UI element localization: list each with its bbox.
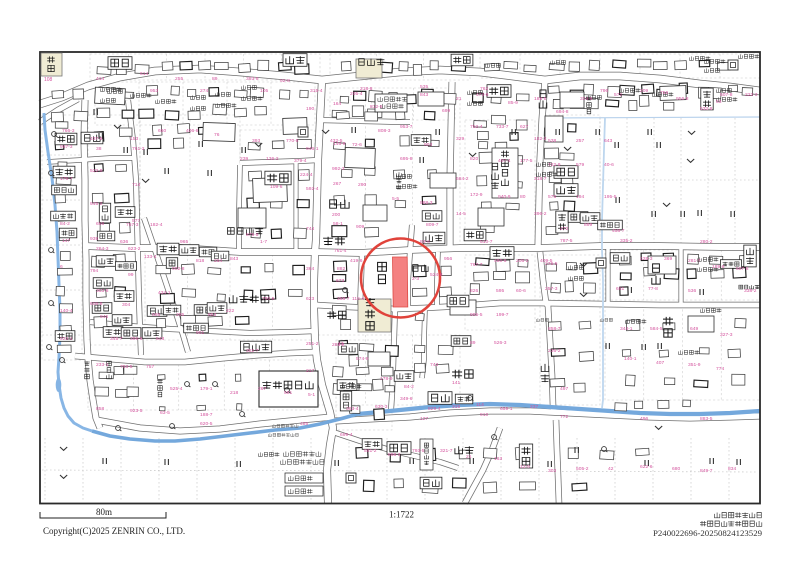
svg-text:577: 577: [132, 218, 140, 224]
svg-text:587-8: 587-8: [736, 266, 749, 272]
svg-text:92-8: 92-8: [280, 78, 290, 84]
svg-text:956: 956: [444, 256, 452, 262]
svg-text:189-8: 189-8: [712, 264, 725, 270]
svg-text:722-9: 722-9: [548, 162, 561, 168]
svg-text:23: 23: [338, 341, 344, 347]
svg-text:251-2: 251-2: [306, 341, 319, 347]
svg-text:267: 267: [333, 181, 341, 187]
svg-text:965: 965: [180, 239, 188, 245]
svg-text:233-1: 233-1: [96, 362, 109, 368]
svg-text:1:1722: 1:1722: [389, 510, 414, 520]
svg-text:744: 744: [306, 226, 314, 232]
svg-text:794: 794: [90, 268, 98, 274]
svg-text:206-2: 206-2: [516, 258, 529, 264]
svg-text:176-7: 176-7: [60, 176, 73, 182]
svg-text:902-8: 902-8: [172, 266, 185, 272]
svg-text:505-2: 505-2: [576, 466, 589, 472]
svg-text:6: 6: [60, 264, 63, 270]
svg-text:76: 76: [214, 132, 220, 138]
svg-text:290: 290: [358, 182, 366, 188]
svg-text:733-7: 733-7: [496, 124, 509, 130]
svg-text:178-9: 178-9: [380, 376, 393, 382]
svg-text:190: 190: [306, 106, 314, 112]
svg-text:21: 21: [456, 96, 462, 102]
svg-text:496: 496: [640, 416, 648, 422]
svg-text:72-6: 72-6: [352, 142, 362, 148]
svg-text:812-6: 812-6: [370, 104, 383, 110]
svg-text:883-5: 883-5: [700, 416, 713, 422]
svg-text:434-1: 434-1: [158, 290, 171, 296]
svg-text:694-8: 694-8: [556, 109, 569, 115]
svg-text:217: 217: [306, 368, 314, 374]
svg-text:510-7: 510-7: [480, 239, 493, 245]
svg-text:535: 535: [420, 84, 428, 90]
svg-text:487-4: 487-4: [498, 158, 511, 164]
svg-text:42: 42: [608, 466, 614, 472]
svg-text:224-4: 224-4: [300, 172, 313, 178]
svg-text:53: 53: [716, 99, 722, 105]
svg-text:595: 595: [496, 288, 504, 294]
svg-text:774: 774: [716, 366, 724, 372]
svg-text:21: 21: [466, 454, 472, 460]
svg-text:923-5: 923-5: [130, 408, 143, 414]
svg-text:649: 649: [690, 326, 698, 332]
svg-text:695: 695: [152, 312, 160, 318]
svg-text:63-5: 63-5: [160, 410, 170, 416]
svg-text:236-2: 236-2: [548, 348, 561, 354]
svg-text:622-6: 622-6: [640, 464, 653, 470]
svg-text:315-4: 315-4: [310, 88, 323, 94]
svg-text:620-5: 620-5: [200, 421, 213, 427]
svg-text:257: 257: [576, 138, 584, 144]
svg-text:761-2: 761-2: [132, 146, 145, 152]
svg-text:584-5: 584-5: [650, 326, 663, 332]
svg-text:345-7: 345-7: [110, 336, 123, 342]
svg-text:182-2: 182-2: [534, 136, 547, 142]
svg-text:536: 536: [688, 288, 696, 294]
svg-text:382-7: 382-7: [246, 348, 259, 354]
svg-text:239: 239: [240, 156, 248, 162]
svg-text:995-5: 995-5: [470, 312, 483, 318]
svg-text:946-1: 946-1: [306, 146, 319, 152]
svg-text:133-4: 133-4: [144, 254, 157, 260]
svg-text:882: 882: [337, 266, 345, 272]
svg-text:699: 699: [442, 108, 450, 114]
svg-text:783-5: 783-5: [120, 364, 133, 370]
svg-text:532-8: 532-8: [700, 106, 713, 112]
svg-text:787-5: 787-5: [560, 238, 573, 244]
svg-text:623: 623: [306, 296, 314, 302]
svg-text:255: 255: [175, 76, 183, 82]
svg-text:992-3: 992-3: [332, 166, 345, 172]
svg-text:12-9: 12-9: [520, 464, 530, 470]
svg-text:524-8: 524-8: [430, 272, 443, 278]
svg-text:179-1: 179-1: [200, 386, 213, 392]
svg-text:829-4: 829-4: [428, 406, 441, 412]
svg-text:522-9: 522-9: [90, 168, 103, 174]
svg-text:136-2: 136-2: [266, 156, 279, 162]
svg-text:699-4: 699-4: [340, 432, 353, 438]
svg-text:581: 581: [284, 390, 292, 396]
svg-text:643: 643: [604, 138, 612, 144]
svg-text:396-6: 396-6: [130, 336, 143, 342]
svg-text:843: 843: [420, 92, 428, 98]
svg-text:903: 903: [424, 142, 432, 148]
svg-text:368-7: 368-7: [337, 296, 350, 302]
svg-text:188-7: 188-7: [200, 412, 213, 418]
svg-text:757: 757: [146, 364, 154, 370]
svg-text:114: 114: [476, 402, 484, 408]
svg-text:164: 164: [333, 101, 341, 107]
svg-text:575: 575: [548, 194, 556, 200]
svg-text:899: 899: [584, 222, 592, 228]
svg-text:429-3: 429-3: [640, 256, 653, 262]
svg-text:264: 264: [214, 258, 222, 264]
svg-text:898-3: 898-3: [388, 452, 401, 458]
svg-text:497: 497: [560, 386, 568, 392]
svg-text:84-2: 84-2: [60, 221, 70, 227]
svg-text:14-5: 14-5: [456, 211, 466, 217]
svg-text:222-3: 222-3: [745, 92, 758, 98]
svg-text:274: 274: [200, 88, 208, 94]
svg-text:109-6: 109-6: [270, 184, 283, 190]
svg-text:89: 89: [470, 340, 476, 346]
svg-text:188-5: 188-5: [534, 96, 547, 102]
svg-text:407: 407: [656, 360, 664, 366]
svg-text:473-6: 473-6: [476, 92, 489, 98]
svg-text:673: 673: [336, 278, 344, 284]
svg-text:209: 209: [640, 88, 648, 94]
svg-text:327-3: 327-3: [720, 332, 733, 338]
svg-text:89: 89: [212, 76, 218, 82]
svg-text:752-4: 752-4: [470, 124, 483, 130]
svg-text:318-7: 318-7: [534, 176, 547, 182]
svg-text:344-1: 344-1: [620, 326, 633, 332]
svg-text:80m: 80m: [96, 507, 112, 517]
svg-text:818: 818: [196, 258, 204, 264]
svg-text:393: 393: [252, 138, 260, 144]
svg-text:280-2: 280-2: [700, 239, 713, 245]
svg-text:659-1: 659-1: [500, 406, 513, 412]
svg-text:808-3: 808-3: [378, 128, 391, 134]
svg-text:627: 627: [520, 124, 528, 130]
svg-text:60-6: 60-6: [516, 288, 526, 294]
svg-text:222: 222: [226, 308, 234, 314]
svg-text:85-9: 85-9: [508, 100, 518, 106]
svg-text:140-1: 140-1: [624, 356, 637, 362]
svg-text:335-2: 335-2: [620, 238, 633, 244]
svg-text:636: 636: [120, 239, 128, 245]
svg-text:572: 572: [614, 92, 622, 98]
svg-text:38: 38: [96, 146, 102, 152]
svg-text:264-3: 264-3: [96, 246, 109, 252]
svg-text:579: 579: [576, 162, 584, 168]
svg-text:656: 656: [96, 221, 104, 227]
svg-text:458-7: 458-7: [612, 228, 625, 234]
svg-text:660: 660: [158, 128, 166, 134]
svg-text:507-8: 507-8: [720, 92, 733, 98]
svg-text:281-7: 281-7: [688, 258, 701, 264]
svg-text:218-8: 218-8: [360, 86, 373, 92]
svg-text:363-8: 363-8: [96, 288, 109, 294]
svg-text:809-7: 809-7: [426, 222, 439, 228]
svg-text:472: 472: [560, 226, 568, 232]
svg-text:614: 614: [140, 71, 148, 77]
svg-text:922-1: 922-1: [60, 336, 73, 342]
svg-text:77-8: 77-8: [648, 286, 658, 292]
svg-text:141: 141: [452, 380, 460, 386]
svg-text:743: 743: [430, 362, 438, 368]
svg-text:127: 127: [420, 416, 428, 422]
svg-text:324-5: 324-5: [580, 96, 593, 102]
svg-text:40-6: 40-6: [604, 162, 614, 168]
svg-text:1-7: 1-7: [260, 239, 267, 245]
svg-text:485: 485: [300, 421, 308, 427]
svg-text:P240022696-20250824123529: P240022696-20250824123529: [653, 528, 763, 538]
svg-text:756: 756: [660, 90, 668, 96]
svg-text:940-9: 940-9: [498, 194, 511, 200]
svg-text:525-4: 525-4: [170, 386, 183, 392]
svg-text:5-1: 5-1: [308, 392, 315, 398]
svg-text:276-5: 276-5: [545, 261, 558, 267]
svg-text:630-3: 630-3: [375, 404, 388, 410]
svg-text:853: 853: [208, 312, 216, 318]
svg-text:58-1: 58-1: [333, 221, 343, 227]
svg-text:606-8: 606-8: [90, 301, 103, 307]
svg-text:182-4: 182-4: [150, 222, 163, 228]
svg-text:901: 901: [196, 330, 204, 336]
svg-text:945-2: 945-2: [90, 201, 103, 207]
svg-text:304: 304: [122, 302, 130, 308]
svg-text:396-2: 396-2: [534, 211, 547, 217]
svg-text:538: 538: [548, 138, 556, 144]
svg-text:349-6: 349-6: [400, 396, 413, 402]
svg-text:406-8: 406-8: [186, 128, 199, 134]
svg-text:146-9: 146-9: [333, 141, 346, 147]
svg-text:714: 714: [132, 182, 140, 188]
svg-text:363-4: 363-4: [346, 406, 359, 412]
svg-text:338-2: 338-2: [744, 288, 757, 294]
svg-text:953: 953: [150, 88, 158, 94]
svg-text:84-2: 84-2: [404, 384, 414, 390]
svg-text:194: 194: [576, 194, 584, 200]
svg-text:939: 939: [90, 236, 98, 242]
svg-text:153: 153: [130, 136, 138, 142]
svg-text:172-9: 172-9: [470, 192, 483, 198]
svg-text:5-5: 5-5: [392, 196, 399, 202]
svg-text:200: 200: [332, 212, 340, 218]
svg-text:967-3: 967-3: [60, 144, 73, 150]
svg-text:796: 796: [600, 88, 608, 94]
svg-text:80: 80: [520, 194, 526, 200]
svg-text:858: 858: [96, 406, 104, 412]
svg-text:770-8: 770-8: [286, 138, 299, 144]
svg-text:83-6: 83-6: [420, 239, 430, 245]
svg-text:820: 820: [470, 156, 478, 162]
svg-text:858-7: 858-7: [548, 326, 561, 332]
svg-text:199-7: 199-7: [496, 312, 509, 318]
svg-text:237: 237: [530, 404, 538, 410]
svg-text:480-5: 480-5: [494, 258, 507, 264]
svg-text:761-4: 761-4: [334, 248, 347, 254]
svg-text:105: 105: [260, 88, 268, 94]
svg-text:581-2: 581-2: [364, 448, 377, 454]
svg-text:680: 680: [672, 466, 680, 472]
svg-text:267: 267: [258, 386, 266, 392]
svg-text:767-7: 767-7: [470, 262, 483, 268]
svg-text:116-4: 116-4: [352, 296, 364, 302]
svg-text:762: 762: [480, 86, 488, 92]
svg-text:684-2: 684-2: [456, 176, 469, 182]
svg-text:849-7: 849-7: [700, 468, 713, 474]
svg-text:414: 414: [96, 76, 104, 82]
svg-text:218: 218: [230, 390, 238, 396]
svg-text:988-3: 988-3: [420, 200, 433, 206]
svg-text:295: 295: [176, 312, 184, 318]
svg-text:369: 369: [664, 256, 672, 262]
svg-text:379-4: 379-4: [294, 158, 307, 164]
svg-text:437-6: 437-6: [90, 136, 103, 142]
svg-text:351-9: 351-9: [688, 362, 701, 368]
svg-text:303: 303: [548, 468, 556, 474]
svg-text:526-3: 526-3: [494, 340, 507, 346]
svg-text:909: 909: [356, 224, 364, 230]
svg-text:834: 834: [728, 466, 736, 472]
svg-text:793-5: 793-5: [412, 448, 425, 454]
svg-text:177-5: 177-5: [520, 158, 533, 164]
svg-text:623-2: 623-2: [128, 246, 141, 252]
svg-text:953-7: 953-7: [400, 124, 413, 130]
svg-text:574-9: 574-9: [356, 356, 369, 362]
svg-text:393-9: 393-9: [246, 76, 259, 82]
svg-text:766-3: 766-3: [62, 128, 75, 134]
svg-text:548: 548: [156, 336, 164, 342]
svg-text:843: 843: [230, 256, 238, 262]
svg-text:140-4: 140-4: [60, 308, 73, 314]
svg-text:321-7: 321-7: [440, 448, 453, 454]
svg-text:790-5: 790-5: [262, 296, 275, 302]
svg-text:195-5: 195-5: [604, 194, 617, 200]
svg-text:945: 945: [100, 314, 108, 320]
svg-text:257-3: 257-3: [545, 286, 558, 292]
svg-text:99: 99: [128, 272, 134, 278]
svg-text:875-5: 875-5: [246, 232, 259, 238]
svg-text:364: 364: [306, 266, 314, 272]
svg-text:Copyright(C)2025 ZENRIN CO., L: Copyright(C)2025 ZENRIN CO., LTD.: [43, 526, 185, 536]
svg-text:956-8: 956-8: [676, 96, 689, 102]
svg-text:108: 108: [44, 77, 53, 83]
svg-text:826: 826: [470, 288, 478, 294]
svg-text:2-3: 2-3: [412, 276, 419, 282]
svg-text:695-8: 695-8: [400, 156, 413, 162]
svg-text:315: 315: [452, 404, 460, 410]
svg-text:419-6: 419-6: [350, 258, 363, 264]
svg-text:329: 329: [456, 136, 464, 142]
svg-text:772: 772: [560, 414, 568, 420]
svg-text:163: 163: [494, 456, 502, 462]
svg-text:147: 147: [62, 238, 70, 244]
svg-text:910: 910: [480, 412, 488, 418]
svg-text:592-4: 592-4: [306, 186, 319, 192]
svg-text:681: 681: [616, 286, 624, 292]
